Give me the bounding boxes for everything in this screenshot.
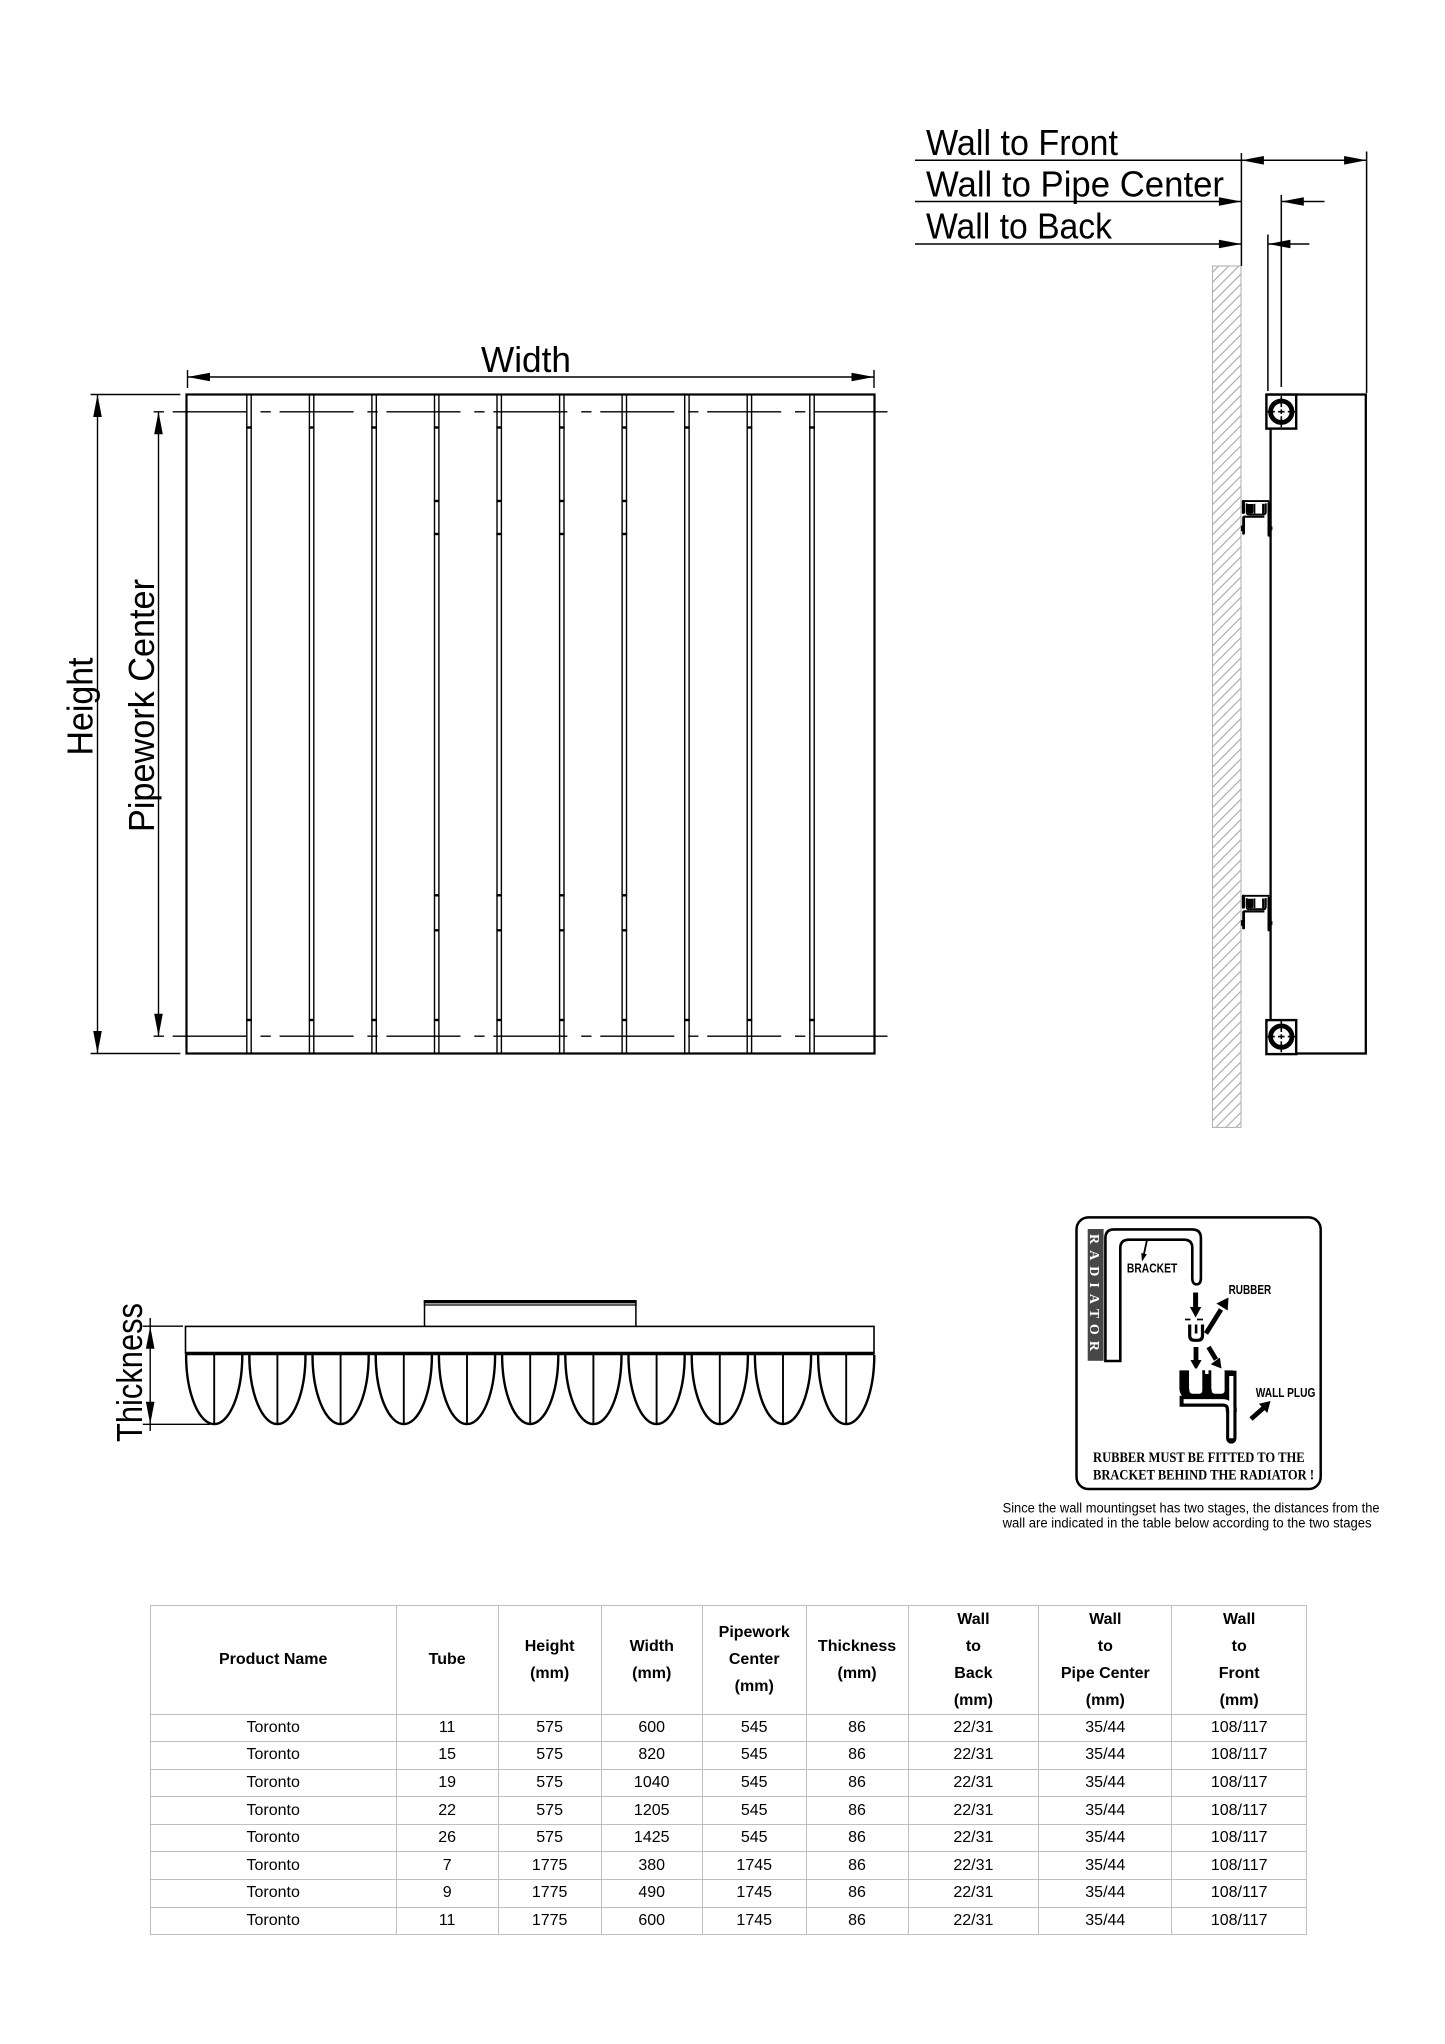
svg-text:WALL PLUG: WALL PLUG [1256,1386,1316,1400]
svg-text:Since the wall mountingset has: Since the wall mountingset has two stage… [1003,1501,1380,1516]
svg-text:Wall to Back: Wall to Back [926,206,1113,247]
svg-text:BRACKET BEHIND THE RADIATOR !: BRACKET BEHIND THE RADIATOR ! [1093,1468,1314,1484]
svg-text:BRACKET: BRACKET [1127,1262,1178,1276]
svg-text:Thickness: Thickness [109,1303,150,1442]
svg-text:RUBBER: RUBBER [1229,1283,1272,1297]
svg-text:RADIATOR: RADIATOR [1086,1234,1101,1357]
svg-text:Height: Height [60,658,101,756]
svg-text:wall are indicated in the tabl: wall are indicated in the table below ac… [1002,1515,1372,1530]
svg-text:Wall to Pipe Center: Wall to Pipe Center [926,164,1224,205]
svg-text:RUBBER MUST BE FITTED TO THE: RUBBER MUST BE FITTED TO THE [1093,1450,1305,1466]
svg-text:Width: Width [481,339,571,380]
svg-text:Pipework Center: Pipework Center [121,579,162,832]
svg-text:Wall to Front: Wall to Front [926,122,1118,163]
